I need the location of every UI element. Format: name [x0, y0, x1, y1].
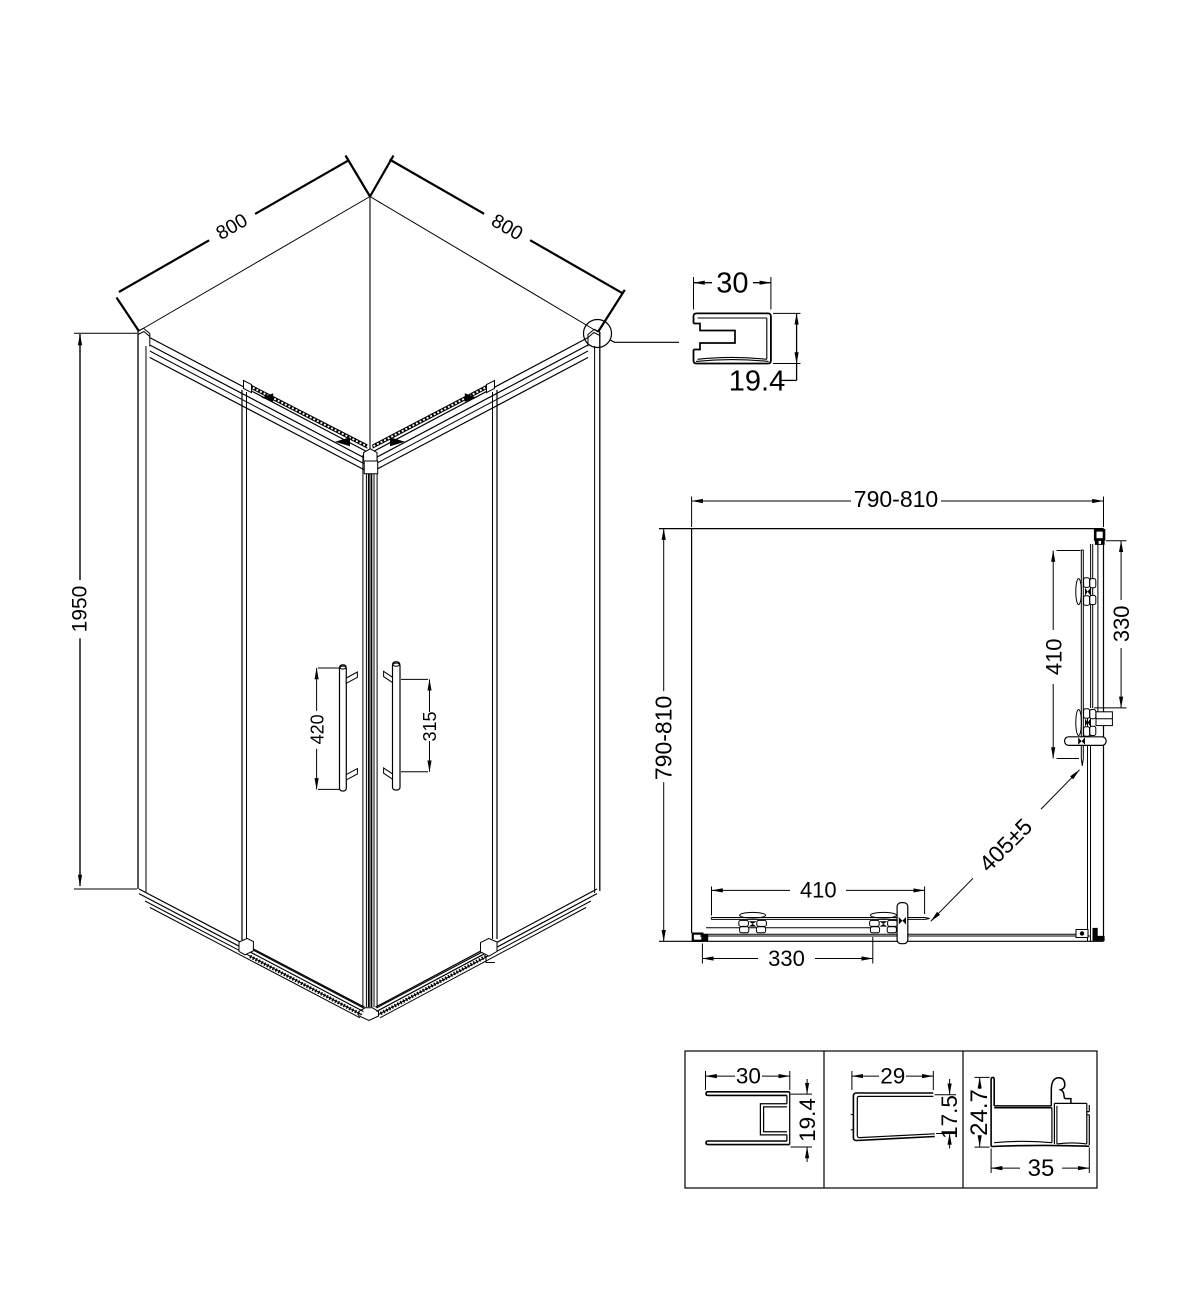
svg-text:35: 35 [1028, 1155, 1055, 1182]
svg-text:1950: 1950 [69, 586, 92, 633]
svg-text:24.7: 24.7 [966, 1089, 993, 1136]
svg-text:19.4: 19.4 [795, 1098, 820, 1142]
svg-text:29: 29 [880, 1064, 905, 1089]
svg-text:17.5: 17.5 [937, 1095, 962, 1139]
svg-text:410: 410 [800, 878, 837, 903]
svg-text:410: 410 [1041, 638, 1066, 675]
svg-text:315: 315 [420, 711, 440, 741]
svg-text:19.4: 19.4 [729, 365, 785, 397]
svg-text:790-810: 790-810 [651, 696, 677, 780]
svg-text:330: 330 [1109, 605, 1134, 642]
svg-text:330: 330 [768, 946, 805, 971]
svg-text:30: 30 [716, 268, 748, 300]
svg-text:790-810: 790-810 [854, 486, 938, 512]
svg-text:420: 420 [307, 714, 327, 744]
svg-text:30: 30 [736, 1064, 761, 1089]
